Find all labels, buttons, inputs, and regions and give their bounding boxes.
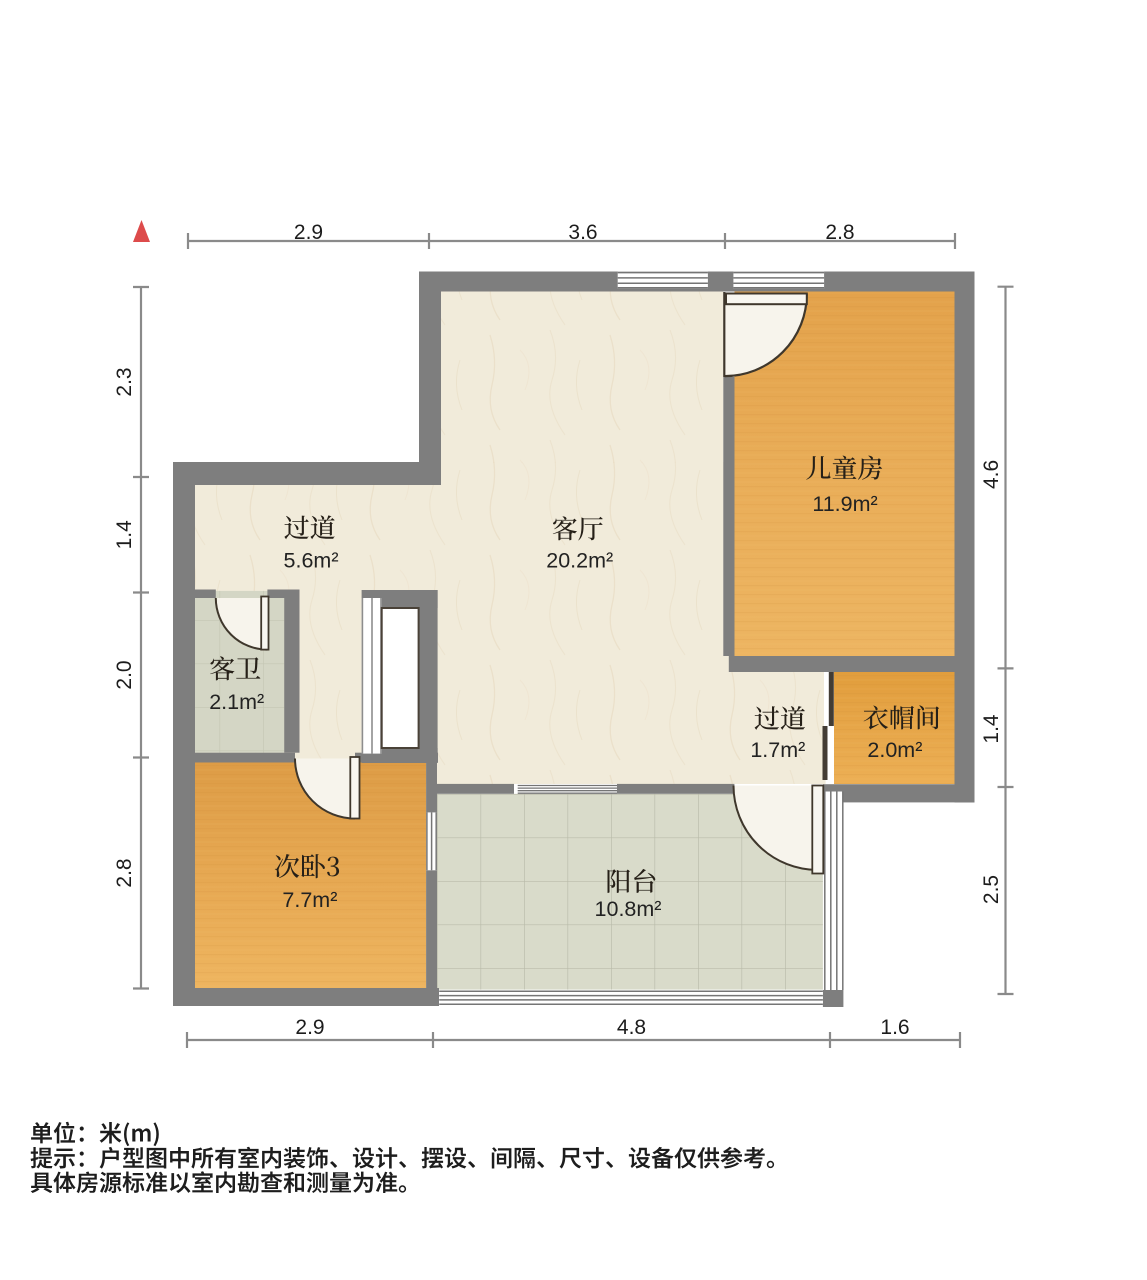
- svg-text:2.8: 2.8: [113, 858, 136, 887]
- svg-text:2.8: 2.8: [825, 221, 854, 244]
- svg-text:1.7m²: 1.7m²: [750, 738, 805, 762]
- svg-text:3.6: 3.6: [568, 221, 597, 244]
- svg-text:1.6: 1.6: [880, 1016, 909, 1039]
- svg-text:1.4: 1.4: [980, 714, 1003, 744]
- svg-text:4.8: 4.8: [617, 1016, 646, 1039]
- svg-text:2.1m²: 2.1m²: [209, 690, 264, 714]
- svg-text:20.2m²: 20.2m²: [546, 549, 613, 573]
- svg-text:2.0: 2.0: [113, 660, 136, 689]
- svg-text:2.3: 2.3: [113, 367, 136, 396]
- svg-text:5.6m²: 5.6m²: [284, 549, 339, 573]
- svg-text:1.4: 1.4: [113, 520, 136, 550]
- svg-text:2.0m²: 2.0m²: [867, 738, 922, 762]
- svg-text:11.9m²: 11.9m²: [812, 492, 877, 516]
- svg-text:2.5: 2.5: [980, 875, 1003, 904]
- svg-text:4.6: 4.6: [980, 460, 1003, 489]
- svg-text:10.8m²: 10.8m²: [595, 897, 662, 921]
- svg-text:2.9: 2.9: [295, 1016, 324, 1039]
- svg-text:2.9: 2.9: [294, 221, 323, 244]
- svg-text:7.7m²: 7.7m²: [282, 888, 337, 912]
